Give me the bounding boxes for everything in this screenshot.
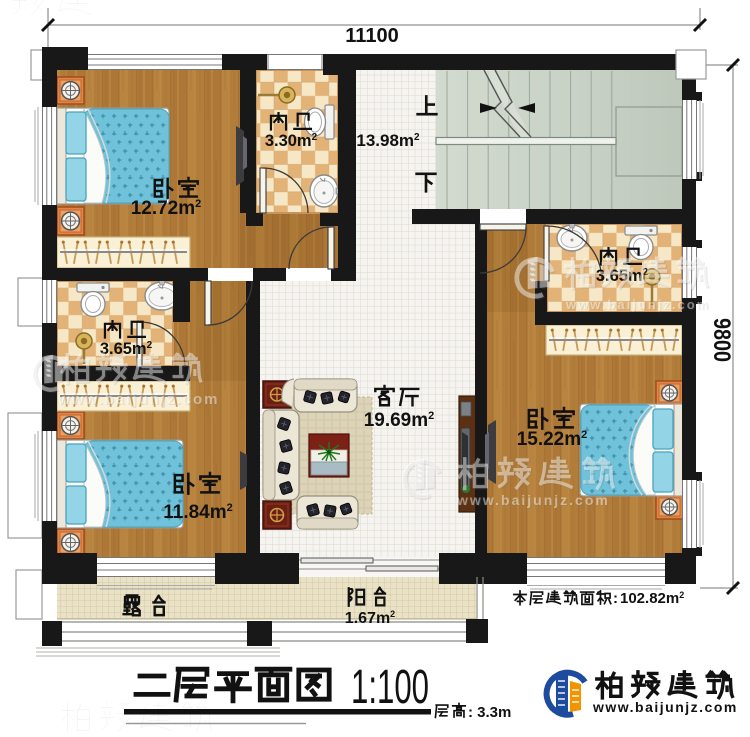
svg-text:: 3.3m: : 3.3m — [468, 704, 511, 721]
svg-text:11.84m2: 11.84m2 — [163, 502, 233, 523]
svg-text:15.22m2: 15.22m2 — [517, 429, 588, 450]
svg-text:11100: 11100 — [345, 25, 398, 47]
svg-text::: : — [613, 590, 618, 607]
svg-text:www.baijunjz.com: www.baijunjz.com — [592, 699, 738, 715]
svg-text:www.baijunjz.com: www.baijunjz.com — [456, 492, 610, 508]
svg-text:www.baijunjz.com: www.baijunjz.com — [57, 391, 219, 408]
svg-text:www.baijunjz.com: www.baijunjz.com — [565, 297, 710, 312]
svg-text:19.69m2: 19.69m2 — [364, 410, 435, 431]
svg-text:13.98m2: 13.98m2 — [356, 131, 420, 150]
svg-text:9800: 9800 — [708, 318, 735, 362]
svg-text:1.67m2: 1.67m2 — [345, 609, 395, 627]
svg-text:102.82m2: 102.82m2 — [620, 590, 684, 607]
svg-text:1:100: 1:100 — [351, 661, 429, 714]
svg-text:3.65m2: 3.65m2 — [100, 340, 153, 358]
svg-text:12.72m2: 12.72m2 — [131, 198, 202, 219]
svg-text:3.30m2: 3.30m2 — [265, 132, 318, 150]
